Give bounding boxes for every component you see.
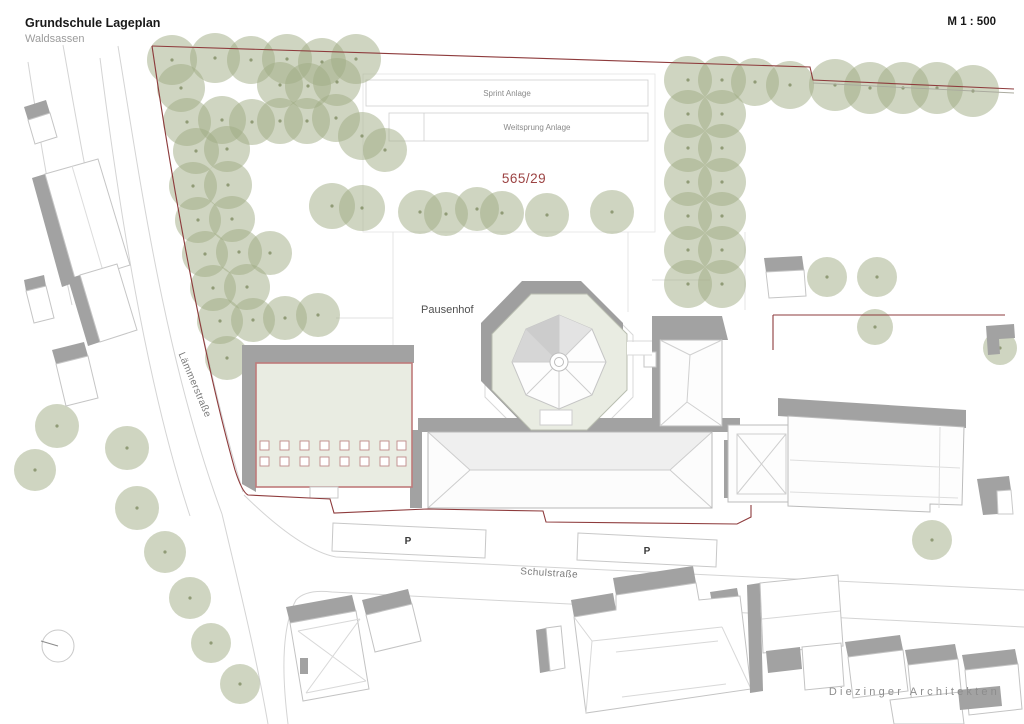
courtyard-building (728, 425, 795, 502)
tree-trunk-dot (196, 218, 199, 221)
tree-trunk-dot (720, 214, 723, 217)
tree-trunk-dot (135, 506, 138, 509)
tree (105, 426, 149, 470)
tree-trunk-dot (185, 120, 188, 123)
tree-trunk-dot (444, 212, 447, 215)
tree-trunk-dot (245, 285, 248, 288)
tree-trunk-dot (268, 251, 271, 254)
tree (525, 193, 569, 237)
school-main-building (428, 432, 712, 508)
tree (296, 293, 340, 337)
tree (480, 191, 524, 235)
tree-trunk-dot (901, 86, 904, 89)
connector-corridor (540, 410, 572, 425)
tree (169, 577, 211, 619)
site-plan-drawing: Sprint Anlage Weitsprung Anlage 565/29 P… (0, 0, 1024, 724)
tree-trunk-dot (610, 210, 613, 213)
tree (766, 61, 814, 109)
tree-trunk-dot (720, 78, 723, 81)
tree-trunk-dot (335, 80, 338, 83)
tree (807, 257, 847, 297)
tree-trunk-dot (545, 213, 548, 216)
tree-trunk-dot (163, 550, 166, 553)
school-north-wing (644, 316, 728, 426)
tree-trunk-dot (475, 207, 478, 210)
north-indicator (41, 630, 74, 662)
tree-trunk-dot (720, 248, 723, 251)
long-jump-label: Weitsprung Anlage (503, 123, 571, 132)
tree (912, 520, 952, 560)
tree-trunk-dot (251, 318, 254, 321)
tree-trunk-dot (825, 275, 828, 278)
garden-building (764, 256, 806, 298)
tree (115, 486, 159, 530)
tree-trunk-dot (194, 149, 197, 152)
parcel-number-label: 565/29 (502, 171, 546, 186)
tree-trunk-dot (720, 282, 723, 285)
parking-lots (332, 523, 717, 567)
tree-trunk-dot (209, 641, 212, 644)
architect-firm: Diezinger Architekten (829, 686, 1000, 698)
tree-trunk-dot (930, 538, 933, 541)
tree-trunk-dot (211, 286, 214, 289)
tree-trunk-dot (360, 134, 363, 137)
tree-trunk-dot (720, 146, 723, 149)
tree-trunk-dot (225, 356, 228, 359)
school-east-building (778, 398, 966, 512)
tree-trunk-dot (500, 211, 503, 214)
tree-trunk-dot (238, 682, 241, 685)
tree-trunk-dot (360, 206, 363, 209)
tree-trunk-dot (218, 319, 221, 322)
tree (363, 128, 407, 172)
tree-trunk-dot (873, 325, 876, 328)
street-label-south: Schulstraße (520, 566, 578, 581)
neighbor-buildings-west (24, 100, 137, 406)
tree-trunk-dot (125, 446, 128, 449)
tree-trunk-dot (686, 282, 689, 285)
tree-trunk-dot (226, 183, 229, 186)
page-title: Grundschule Lageplan (25, 16, 160, 30)
tree (14, 449, 56, 491)
parking-label-2: P (644, 546, 651, 557)
tree-trunk-dot (753, 80, 756, 83)
tree-trunk-dot (278, 119, 281, 122)
tree-trunk-dot (191, 184, 194, 187)
courtyard-label: Pausenhof (421, 304, 475, 316)
sprint-track-label: Sprint Anlage (483, 89, 531, 98)
tree-trunk-dot (720, 112, 723, 115)
tree (35, 404, 79, 448)
tree-trunk-dot (418, 210, 421, 213)
tree (191, 623, 231, 663)
scale-indicator: M 1 : 500 (947, 16, 996, 28)
tree-trunk-dot (225, 147, 228, 150)
tree-trunk-dot (179, 86, 182, 89)
tree-trunk-dot (686, 248, 689, 251)
tree-trunk-dot (237, 250, 240, 253)
tree-trunk-dot (383, 148, 386, 151)
tree-trunk-dot (306, 84, 309, 87)
tree (590, 190, 634, 234)
tree-trunk-dot (330, 204, 333, 207)
tree (698, 260, 746, 308)
new-extension-building (242, 345, 414, 498)
tree-trunk-dot (220, 118, 223, 121)
tree-trunk-dot (686, 214, 689, 217)
tree-trunk-dot (285, 57, 288, 60)
parking-label-1: P (405, 536, 412, 547)
tree-trunk-dot (55, 424, 58, 427)
tree (144, 531, 186, 573)
tree (857, 257, 897, 297)
tree-trunk-dot (686, 112, 689, 115)
tree-trunk-dot (354, 57, 357, 60)
tree-trunk-dot (316, 313, 319, 316)
tree-trunk-dot (875, 275, 878, 278)
extension-footprint (256, 363, 412, 487)
site-plan-sheet: Sprint Anlage Weitsprung Anlage 565/29 P… (0, 0, 1024, 724)
tree-trunk-dot (213, 56, 216, 59)
tree-trunk-dot (686, 180, 689, 183)
tree-trunk-dot (250, 120, 253, 123)
tree-trunk-dot (170, 58, 173, 61)
tree-trunk-dot (249, 58, 252, 61)
tree-trunk-dot (868, 86, 871, 89)
tree-trunk-dot (188, 596, 191, 599)
tree (220, 664, 260, 704)
tree-trunk-dot (33, 468, 36, 471)
tree-trunk-dot (230, 217, 233, 220)
tree-trunk-dot (278, 83, 281, 86)
tree (339, 185, 385, 231)
tree-trunk-dot (305, 119, 308, 122)
tree-trunk-dot (720, 180, 723, 183)
tree-trunk-dot (788, 83, 791, 86)
tree-trunk-dot (686, 78, 689, 81)
page-subtitle: Waldsassen (25, 33, 85, 45)
neighbor-buildings-south (286, 566, 1022, 724)
tree-trunk-dot (686, 146, 689, 149)
tree-trunk-dot (334, 116, 337, 119)
tree (857, 309, 893, 345)
tree-trunk-dot (283, 316, 286, 319)
tree-trunk-dot (203, 252, 206, 255)
